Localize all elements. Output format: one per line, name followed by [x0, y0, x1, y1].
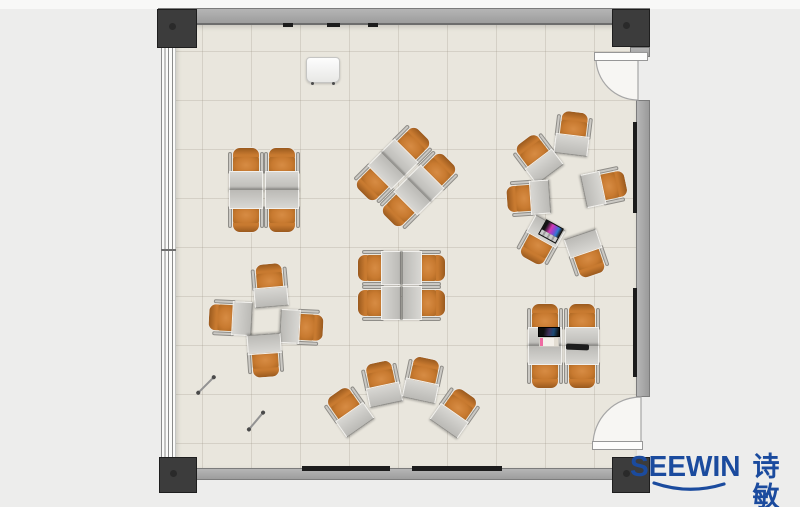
- desk-chair-unit: [279, 309, 325, 345]
- wall-board-top-2: [327, 23, 340, 27]
- wall-board-bottom-2: [412, 466, 502, 471]
- logo-seewin: SEEWIN 诗敏: [630, 452, 800, 507]
- wall-board-right-1: [633, 122, 637, 213]
- logo-text-cn: 诗敏: [752, 452, 800, 507]
- desk-top: [247, 333, 282, 355]
- desk-chair-unit: [247, 333, 284, 379]
- floorplan-canvas: SEEWIN 诗敏: [0, 0, 800, 507]
- logo-text-en: SEEWIN: [630, 452, 740, 483]
- wall-board-top-1: [283, 23, 293, 27]
- desk-chair-unit: [357, 251, 401, 285]
- column-top-left: [157, 9, 197, 48]
- desk-chair-unit: [251, 262, 289, 309]
- desk-chair-unit: [553, 109, 592, 157]
- desk-chair-unit: [207, 300, 253, 336]
- door-leaf-bottom-right: [592, 441, 643, 450]
- column-bottom-left: [159, 457, 197, 493]
- desk-chair-unit: [229, 189, 263, 233]
- desk-chair-unit: [402, 251, 446, 285]
- chair-armrest-left: [559, 362, 563, 384]
- desk-top: [265, 189, 299, 209]
- desk-top: [229, 171, 263, 191]
- desk-top: [253, 286, 289, 309]
- laptop: [538, 327, 560, 348]
- wall-board-top-3: [368, 23, 378, 27]
- chair-armrest-right: [419, 317, 441, 321]
- desk-chair-unit: [505, 180, 551, 217]
- easel-whiteboard: [306, 57, 340, 83]
- logo-swoosh-icon: [650, 481, 728, 493]
- desk-top: [279, 309, 301, 344]
- desk-top: [381, 251, 401, 285]
- desk-top: [381, 286, 401, 320]
- desk-top: [265, 171, 299, 191]
- desk-chair-unit: [229, 147, 263, 191]
- desk-chair-unit: [357, 286, 401, 320]
- desk-top: [229, 189, 263, 209]
- desk-top: [528, 345, 562, 365]
- column-top-right: [612, 9, 650, 47]
- chair-armrest-left: [596, 362, 600, 384]
- desk-chair-unit: [265, 189, 299, 233]
- wall-top: [158, 8, 650, 25]
- desk-chair-unit: [565, 303, 599, 347]
- desk-top: [402, 251, 422, 285]
- window-mullion-joint: [161, 249, 176, 251]
- desk-chair-unit: [265, 147, 299, 191]
- door-leaf-top-right: [594, 52, 648, 61]
- desk-top: [529, 180, 551, 215]
- wall-right: [636, 100, 650, 397]
- window-wall-left: [161, 48, 176, 458]
- desk-top: [553, 133, 589, 157]
- chair-armrest-left: [296, 206, 300, 228]
- wall-board-right-2: [633, 288, 637, 377]
- tablet: [566, 344, 589, 351]
- desk-chair-unit: [565, 345, 599, 389]
- desk-chair-unit: [402, 286, 446, 320]
- wall-bottom: [196, 468, 615, 480]
- desk-chair-unit: [528, 345, 562, 389]
- desk-top: [231, 301, 253, 336]
- desk-top: [402, 286, 422, 320]
- wall-board-bottom-1: [302, 466, 390, 471]
